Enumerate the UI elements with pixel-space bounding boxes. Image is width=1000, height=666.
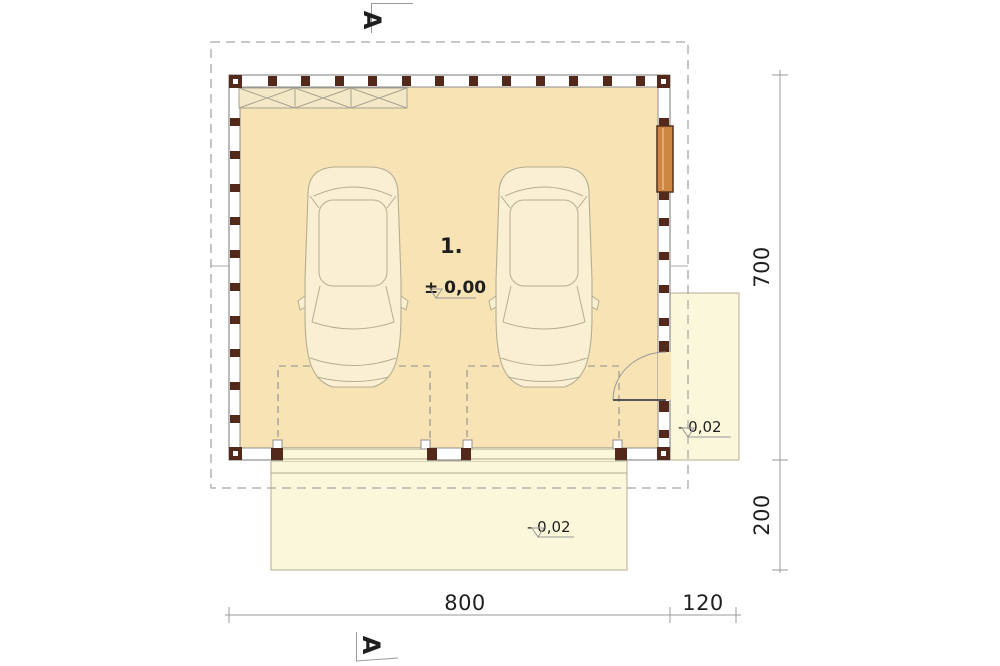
car-2-icon [489,167,599,387]
driveway-apron [271,461,627,570]
section-marker-top-label: A [358,11,386,30]
section-marker-bottom: A [357,632,399,661]
dimension-width-main: 800 [444,591,486,615]
side-pad-level-text: - 0,02 [678,418,722,436]
interior-floor [240,87,658,448]
room-number-label: 1. [440,234,463,258]
floor-level-text: ± 0,00 [424,278,486,298]
floor-plan-canvas: 1. ± 0,00 - 0,02 - 0,02 700 200 800 120 … [0,0,1000,666]
dimension-height-driveway: 200 [750,494,774,536]
driveway-level-marker: - 0,02 [527,518,574,537]
dimension-width-side-pad: 120 [682,591,724,615]
section-marker-top: A [358,4,413,34]
dimension-height-main: 700 [750,246,774,288]
storage-bench [239,88,407,108]
building-walls [229,75,670,460]
section-marker-bottom-label: A [357,636,385,655]
garage-floor-plan-drawing: 1. ± 0,00 - 0,02 - 0,02 700 200 800 120 … [0,0,1000,666]
car-1-icon [298,167,408,387]
dimension-chain-right [772,70,788,573]
driveway-level-text: - 0,02 [527,518,571,536]
window [657,126,673,192]
floor-level-marker: ± 0,00 [424,278,486,298]
